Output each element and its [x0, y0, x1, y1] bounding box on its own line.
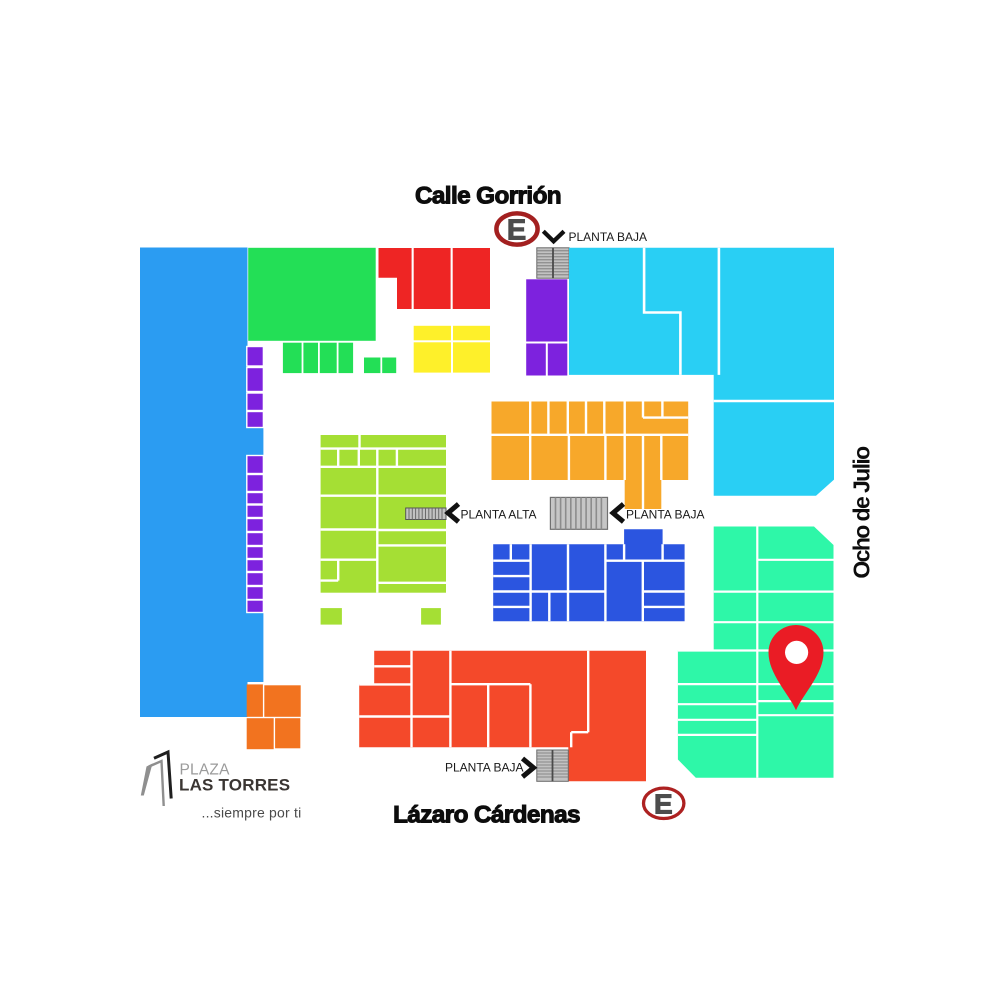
- svg-text:PLANTA BAJA: PLANTA BAJA: [626, 508, 704, 522]
- svg-text:E: E: [507, 215, 526, 247]
- svg-text:LAS TORRES: LAS TORRES: [179, 776, 290, 795]
- svg-text:E: E: [654, 788, 673, 819]
- svg-text:Ocho de Julio: Ocho de Julio: [849, 446, 875, 579]
- svg-text:PLANTA BAJA: PLANTA BAJA: [445, 761, 523, 775]
- svg-text:Calle Gorrión: Calle Gorrión: [415, 183, 561, 210]
- svg-text:Lázaro Cárdenas: Lázaro Cárdenas: [393, 802, 580, 829]
- svg-text:PLANTA ALTA: PLANTA ALTA: [461, 508, 537, 522]
- svg-text:PLANTA BAJA: PLANTA BAJA: [569, 230, 647, 244]
- svg-text:...siempre por ti: ...siempre por ti: [202, 805, 302, 821]
